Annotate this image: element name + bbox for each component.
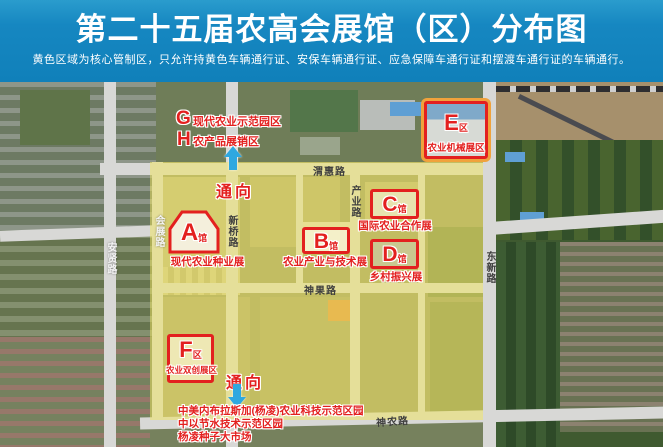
arrow-up-icon [224, 146, 242, 170]
venue-H-letter: H [177, 130, 191, 149]
satellite-patch [0, 232, 156, 337]
venue-C-box: C馆 [370, 189, 419, 219]
note-line: 杨凌种子大市场 [178, 431, 364, 444]
satellite-patch [560, 242, 663, 432]
satellite-patch [390, 102, 424, 116]
venue-D-name: 乡村振兴展 [326, 269, 466, 284]
satellite-patch [0, 337, 150, 447]
road-label-shennong: 神农路 [376, 412, 410, 429]
venue-E-box: E区 农业机械展区 [424, 101, 488, 159]
header-banner: 第二十五届农高会展馆（区）分布图 黄色区域为核心管制区，只允许持黄色车辆通行证、… [0, 0, 663, 82]
page-subtitle: 黄色区域为核心管制区，只允许持黄色车辆通行证、安保车辆通行证、应急保障车通行证和… [0, 51, 663, 67]
note-line: 中以节水技术示范区园 [178, 418, 364, 431]
venue-G-letter: G [176, 109, 191, 128]
venue-E-name: 农业机械展区 [427, 140, 485, 154]
note-line: 中美内布拉斯加(杨凌)农业科技示范区园 [178, 405, 364, 418]
venue-F-box: F区 农业双创展区 [167, 334, 214, 383]
venue-G-name: 现代农业示范园区 [193, 113, 281, 129]
road-label-anxian: 安贤路 [103, 242, 118, 275]
road-label-huizhan: 会展路 [151, 215, 166, 248]
venue-A-shape: A馆 [168, 210, 220, 254]
road-label-shenguo: 神果路 [304, 282, 337, 297]
venue-E-letter: E区 [427, 112, 485, 139]
destination-notes: 中美内布拉斯加(杨凌)农业科技示范区园 中以节水技术示范区园 杨凌种子大市场 [178, 405, 364, 444]
satellite-patch [290, 90, 358, 132]
road-label-xinqiao: 新桥路 [224, 215, 239, 248]
direction-label-top: 通向 [200, 178, 270, 202]
page-title: 第二十五届农高会展馆（区）分布图 [0, 12, 663, 48]
satellite-patch [505, 152, 525, 162]
venue-A-letter: A馆 [168, 222, 220, 249]
venue-C-letter: C馆 [373, 194, 416, 220]
venue-B-name: 农业产业与技术展 [255, 254, 395, 269]
venue-F-name: 农业双创展区 [166, 364, 215, 376]
railway-line [496, 86, 663, 92]
venue-F-letter: F区 [170, 339, 211, 366]
map-area: 渭惠路 产业路 新桥路 会展路 安贤路 东新路 神果路 神农路 A馆 现代农业种… [0, 82, 663, 447]
road-label-chanye: 产业路 [347, 185, 362, 218]
venue-C-name: 国际农业合作展 [325, 218, 465, 233]
satellite-patch [20, 90, 90, 145]
road-label-weihui: 渭惠路 [313, 163, 346, 178]
road-label-dongxin: 东新路 [482, 251, 497, 284]
poster-root: 第二十五届农高会展馆（区）分布图 黄色区域为核心管制区，只允许持黄色车辆通行证、… [0, 0, 663, 447]
satellite-patch [300, 137, 340, 155]
